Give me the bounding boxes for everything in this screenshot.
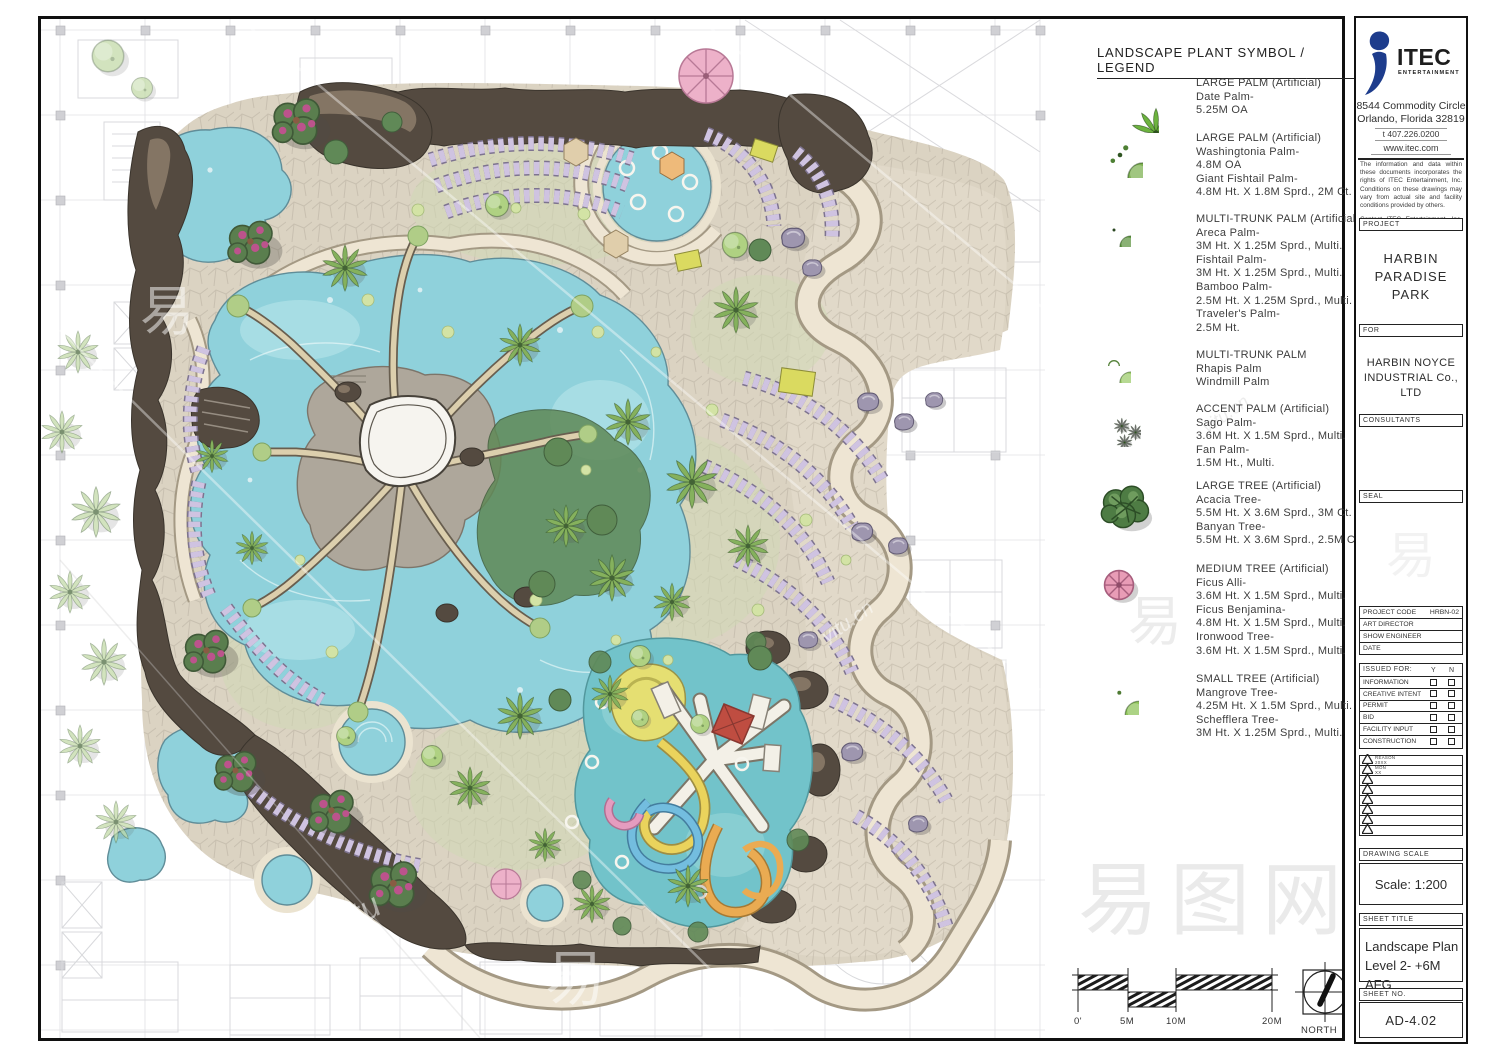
- washingtonia-palm-icon: [1097, 132, 1196, 200]
- field-label: PROJECT CODE: [1363, 607, 1416, 618]
- sago-palm-icon: [1097, 403, 1196, 471]
- svg-text:10M: 10M: [1166, 1016, 1186, 1027]
- sheet-number: AD-4.02: [1359, 1002, 1463, 1038]
- consultants-label: CONSULTANTS: [1359, 414, 1463, 427]
- revision-triangle-icon: [1362, 794, 1373, 804]
- itec-logo-swoosh: [1365, 52, 1387, 95]
- svg-text:5M: 5M: [1120, 1016, 1134, 1027]
- revision-row: [1359, 825, 1463, 836]
- client-name: HARBIN NOYCE INDUSTRIAL Co., LTD: [1358, 356, 1464, 401]
- checkbox-n[interactable]: [1448, 702, 1455, 709]
- legend-entry: ACCENT PALM (Artificial) Sago Palm- 3.6M…: [1097, 403, 1392, 471]
- itec-logo-text: ITEC: [1397, 44, 1451, 71]
- legend-title: LANDSCAPE PLANT SYMBOL / LEGEND: [1097, 45, 1355, 79]
- field-label: ART DIRECTOR: [1363, 619, 1414, 630]
- issued-for-row: CREATIVE INTENT: [1360, 689, 1462, 701]
- checkbox-y[interactable]: [1430, 679, 1437, 686]
- drawing-scale-value: Scale: 1:200: [1359, 863, 1463, 905]
- title-block: ITEC ENTERTAINMENT 8544 Commodity Circle…: [1354, 16, 1468, 1044]
- checkbox-y[interactable]: [1430, 726, 1437, 733]
- areca-palm-icon: [1097, 213, 1196, 335]
- medium-tree-icon: [1097, 563, 1196, 658]
- drawing-frame: 易 易 易 yitu yitu.cn yitu.cn 易图网 0' 5M 10M…: [38, 16, 1345, 1041]
- big-watermark: 易图网: [1078, 856, 1342, 945]
- issued-for-header: ISSUED FOR: Y N: [1360, 664, 1462, 677]
- revision-triangle-icon: [1362, 774, 1373, 784]
- legend-entry: MULTI-TRUNK PALM (Artificial) Areca Palm…: [1097, 213, 1392, 335]
- issued-for-row: CONSTRUCTION: [1360, 736, 1462, 748]
- project-label: PROJECT: [1359, 218, 1463, 231]
- legend-entry: MEDIUM TREE (Artificial) Ficus Alli- 3.6…: [1097, 563, 1392, 658]
- small-tree-icon: [1097, 673, 1196, 741]
- rhapis-palm-icon: [1097, 349, 1196, 390]
- column-y: Y: [1431, 665, 1436, 677]
- legend-entry: LARGE TREE (Artificial) Acacia Tree- 5.5…: [1097, 480, 1392, 548]
- issued-for-row: INFORMATION: [1360, 677, 1462, 689]
- issued-for-row: BID: [1360, 712, 1462, 724]
- revision-triangle-icon: [1362, 754, 1373, 764]
- svg-text:易: 易: [545, 946, 605, 1013]
- titleblock-watermark: 易: [1356, 516, 1466, 588]
- legend-entry: MULTI-TRUNK PALM Rhapis Palm Windmill Pa…: [1097, 349, 1392, 390]
- project-name: HARBIN PARADISE PARK: [1358, 250, 1464, 304]
- field-label: DATE: [1363, 643, 1381, 654]
- svg-text:0': 0': [1074, 1016, 1082, 1027]
- large-tree-icon: [1097, 480, 1196, 548]
- revision-triangle-icon: [1362, 824, 1373, 834]
- field-label: SHOW ENGINEER: [1363, 631, 1422, 642]
- revision-triangle-icon: [1362, 814, 1373, 824]
- issued-for-label: ISSUED FOR:: [1363, 664, 1412, 676]
- checkbox-n[interactable]: [1448, 679, 1455, 686]
- sheet-title: Landscape Plan Level 2- +6M AFG: [1359, 928, 1463, 982]
- revision-triangle-icon: [1362, 764, 1373, 774]
- legend-entry: SMALL TREE (Artificial) Mangrove Tree- 4…: [1097, 673, 1392, 741]
- address-line-2: Orlando, Florida 32819: [1356, 113, 1466, 126]
- checkbox-y[interactable]: [1430, 738, 1437, 745]
- checkbox-n[interactable]: [1448, 738, 1455, 745]
- checkbox-n[interactable]: [1448, 714, 1455, 721]
- sheet-title-label: SHEET TITLE: [1359, 913, 1463, 926]
- checkbox-n[interactable]: [1448, 726, 1455, 733]
- checkbox-n[interactable]: [1448, 690, 1455, 697]
- legend-entry: LARGE PALM (Artificial) Washingtonia Pal…: [1097, 132, 1392, 200]
- legend-entry: LARGE PALM (Artificial) Date Palm- 5.25M…: [1097, 77, 1392, 118]
- disclaimer-paragraph-1: The information and data within these do…: [1360, 161, 1462, 210]
- website-link[interactable]: www.itec.com: [1371, 142, 1451, 155]
- sheet-no-label: SHEET NO.: [1359, 988, 1463, 1001]
- checkbox-y[interactable]: [1430, 690, 1437, 697]
- seal-label: SEAL: [1359, 490, 1463, 503]
- revision-triangle-icon: [1362, 784, 1373, 794]
- issued-for-table: ISSUED FOR: Y N INFORMATION CREATIVE INT…: [1359, 663, 1463, 749]
- address-line-1: 8544 Commodity Circle: [1356, 100, 1466, 113]
- revision-triangle-icon: [1362, 804, 1373, 814]
- svg-text:NORTH: NORTH: [1301, 1025, 1337, 1036]
- date-field: DATE: [1359, 642, 1463, 655]
- checkbox-y[interactable]: [1430, 702, 1437, 709]
- checkbox-y[interactable]: [1430, 714, 1437, 721]
- for-label: FOR: [1359, 324, 1463, 337]
- itec-logo-dot: [1370, 32, 1389, 51]
- svg-text:易: 易: [140, 282, 194, 342]
- issued-for-row: PERMIT: [1360, 701, 1462, 713]
- issued-for-row: FACILITY INPUT: [1360, 724, 1462, 736]
- column-n: N: [1449, 665, 1454, 677]
- phone: t 407.226.0200: [1375, 128, 1447, 141]
- svg-text:20M: 20M: [1262, 1016, 1282, 1027]
- date-palm-icon: [1097, 77, 1196, 118]
- itec-logo-subtext: ENTERTAINMENT: [1398, 70, 1460, 76]
- company-address: 8544 Commodity Circle Orlando, Florida 3…: [1356, 100, 1466, 160]
- drawing-scale-label: DRAWING SCALE: [1359, 848, 1463, 861]
- field-value: HRBN-02: [1430, 607, 1459, 618]
